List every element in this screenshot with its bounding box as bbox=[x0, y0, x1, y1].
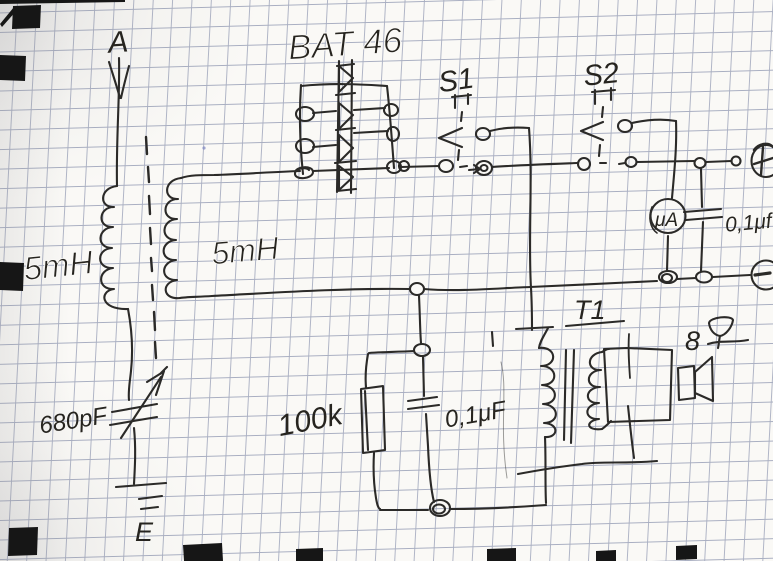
svg-text:8: 8 bbox=[685, 326, 700, 356]
svg-text:5mH: 5mH bbox=[210, 230, 281, 272]
svg-text:S1: S1 bbox=[436, 63, 476, 100]
svg-text:E: E bbox=[135, 517, 154, 547]
svg-text:5mH: 5mH bbox=[22, 243, 95, 287]
svg-text:A: A bbox=[105, 25, 129, 59]
svg-text:T1: T1 bbox=[574, 295, 606, 325]
svg-text:0,1μf: 0,1μf bbox=[724, 210, 773, 237]
svg-text:μA: μA bbox=[654, 210, 678, 231]
svg-text:BAT 46: BAT 46 bbox=[287, 21, 404, 68]
svg-text:S2: S2 bbox=[582, 57, 621, 93]
